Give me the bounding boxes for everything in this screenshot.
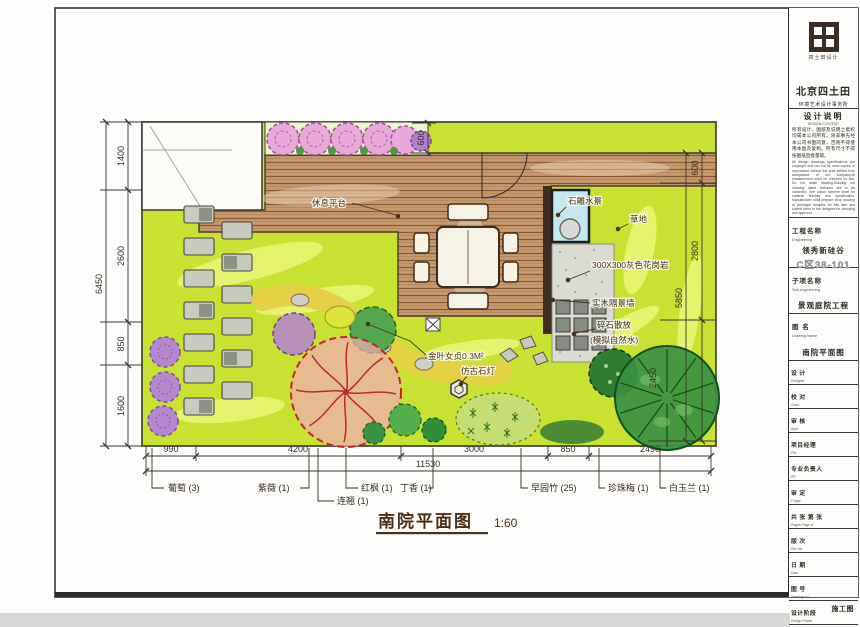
sub-project-section: 子项名称 Sub-engineering 景观庭院工程	[789, 268, 858, 314]
company-subtitle: 环境艺术设计事务所	[789, 101, 858, 108]
title-block: 四土田设计 北京四土田 环境艺术设计事务所 设计说明 DESIGN CONTEN…	[788, 8, 858, 597]
bamboo-mass	[456, 393, 540, 445]
project-name: 领秀新硅谷	[792, 245, 855, 256]
row-date: 日 期Date	[789, 553, 858, 577]
dim-right-600: 600	[690, 160, 700, 175]
label-gravel: 碎石散放	[597, 320, 632, 330]
dim-bottom-990: 990	[163, 444, 178, 454]
drawing-name-label-en: Drawing Name	[792, 334, 855, 338]
logo-caption: 四土田设计	[789, 54, 858, 61]
dim-right-2450: 2450	[648, 368, 658, 388]
dim-top-600: 600	[416, 130, 426, 145]
plan-title-scale: 1:60	[494, 516, 518, 530]
golden-privet-patch	[325, 306, 355, 328]
company-name: 北京四土田	[789, 83, 858, 98]
crape-myrtle-shrub	[273, 313, 315, 355]
dim-bottom-2490: 2490	[640, 444, 660, 454]
plant-grape: 葡萄 (3)	[168, 482, 200, 493]
plan-title-text: 南院平面图	[378, 511, 473, 531]
project-label-en: Engineering	[792, 238, 855, 242]
dim-bottom-850: 850	[560, 444, 575, 454]
stone-lantern	[451, 380, 467, 398]
dim-right-2800: 2800	[690, 241, 700, 261]
dim-right-total: 5850	[674, 288, 684, 308]
design-notes-title-en: DESIGN CONTENT	[792, 122, 855, 126]
garden-plan-svg: 1400 2600 850 1600 6450 990 4200 3000 85…	[0, 0, 860, 627]
row-project-manager: 项目经理PM	[789, 433, 858, 457]
company-logo	[809, 22, 839, 52]
garden-plan	[142, 122, 719, 450]
sub-project-label-en: Sub-engineering	[792, 288, 855, 292]
plant-crape-myrtle: 紫薇 (1)	[258, 482, 290, 493]
plant-forsythia: 连翘 (1)	[337, 495, 369, 506]
dim-left-1600: 1600	[116, 396, 126, 416]
dim-left-total: 6450	[94, 274, 104, 294]
row-design-phase: 设计阶段Design Phase施工图	[789, 601, 858, 625]
row-checked: 校 对Chkd	[789, 385, 858, 409]
plant-bamboo: 早园竹 (25)	[531, 482, 577, 493]
sub-project-name: 景观庭院工程	[792, 300, 855, 311]
drawing-name-value: 南院平面图	[792, 347, 855, 358]
house-footprint	[142, 122, 262, 210]
design-notes-section: 设计说明 DESIGN CONTENT 所有设计、图纸及说明之版权均属本公司所有…	[789, 109, 858, 218]
drawing-sheet: 1400 2600 850 1600 6450 990 4200 3000 85…	[0, 0, 860, 627]
plan-title-underline	[376, 532, 488, 534]
label-stone-lantern: 仿古石灯	[461, 366, 496, 376]
row-pages-of: 共 张 第 张Pages Page of	[789, 505, 858, 529]
title-block-logo-section: 四土田设计 北京四土田 环境艺术设计事务所	[789, 8, 858, 109]
plan-title: 南院平面图 1:60	[376, 511, 518, 534]
drawing-name-label-cn: 图 名	[792, 324, 810, 331]
wood-screen-wall	[543, 186, 552, 334]
row-revision: 版 次Rev No.	[789, 529, 858, 553]
dim-left-850: 850	[116, 336, 126, 351]
magnolia-tree	[615, 346, 719, 450]
label-lawn: 草地	[630, 214, 648, 224]
drawing-name-section: 图 名 Drawing Name 南院平面图	[789, 314, 858, 361]
dim-left-1400: 1400	[116, 146, 126, 166]
label-granite: 300X300灰色花岗岩	[592, 260, 669, 270]
plant-magnolia: 白玉兰 (1)	[669, 482, 710, 493]
label-stone-water-feature: 石雕水景	[568, 196, 602, 206]
small-marker-box	[426, 318, 440, 331]
design-notes-body-cn: 所有设计、图纸及说明之版权均属本公司所有。除非事先经本公司书面同意，否则不得使用…	[792, 127, 855, 159]
dim-bottom-4200: 4200	[288, 444, 308, 454]
plant-false-spiraea: 珍珠梅 (1)	[608, 482, 649, 493]
sub-project-label-cn: 子项名称	[792, 278, 822, 285]
design-notes-title-cn: 设计说明	[792, 111, 855, 122]
plant-callouts: 葡萄 (3) 紫薇 (1) 连翘 (1) 红枫 (1) 丁香 (1) 早园竹 (…	[152, 448, 710, 506]
dim-left-2600: 2600	[116, 246, 126, 266]
dim-bottom-3000: 3000	[464, 444, 484, 454]
label-golden-privet: 金叶女贞0.3M²	[428, 351, 484, 361]
row-drawing-number: 图 号Drawing No.	[789, 577, 858, 601]
row-approved: 审 核Appr	[789, 409, 858, 433]
dim-bottom-total: 11530	[416, 459, 440, 469]
row-professional-principal: 专业负责人PP	[789, 457, 858, 481]
label-rest-platform: 休息平台	[312, 198, 346, 208]
design-notes-body-en: All design drawings specifications are c…	[792, 160, 855, 215]
flower-bed	[265, 122, 431, 155]
row-designer: 设 计Designer	[789, 361, 858, 385]
project-label-cn: 工程名称	[792, 228, 822, 235]
label-wood-screen-wall: 实木隔景墙	[592, 298, 635, 308]
title-block-rows: 设 计Designer 校 对Chkd 审 核Appr 项目经理PM 专业负责人…	[789, 361, 858, 627]
grape-shrubs	[148, 337, 180, 436]
label-gravel-note: (模拟自然水)	[590, 335, 638, 345]
scan-edge-shadow	[0, 613, 790, 627]
plant-red-maple: 红枫 (1)	[361, 482, 393, 493]
row-final-approval: 审 定F.Appr	[789, 481, 858, 505]
plant-lilac: 丁香 (1)	[400, 483, 432, 493]
project-section: 工程名称 Engineering 领秀新硅谷 C区38-101	[789, 218, 858, 268]
